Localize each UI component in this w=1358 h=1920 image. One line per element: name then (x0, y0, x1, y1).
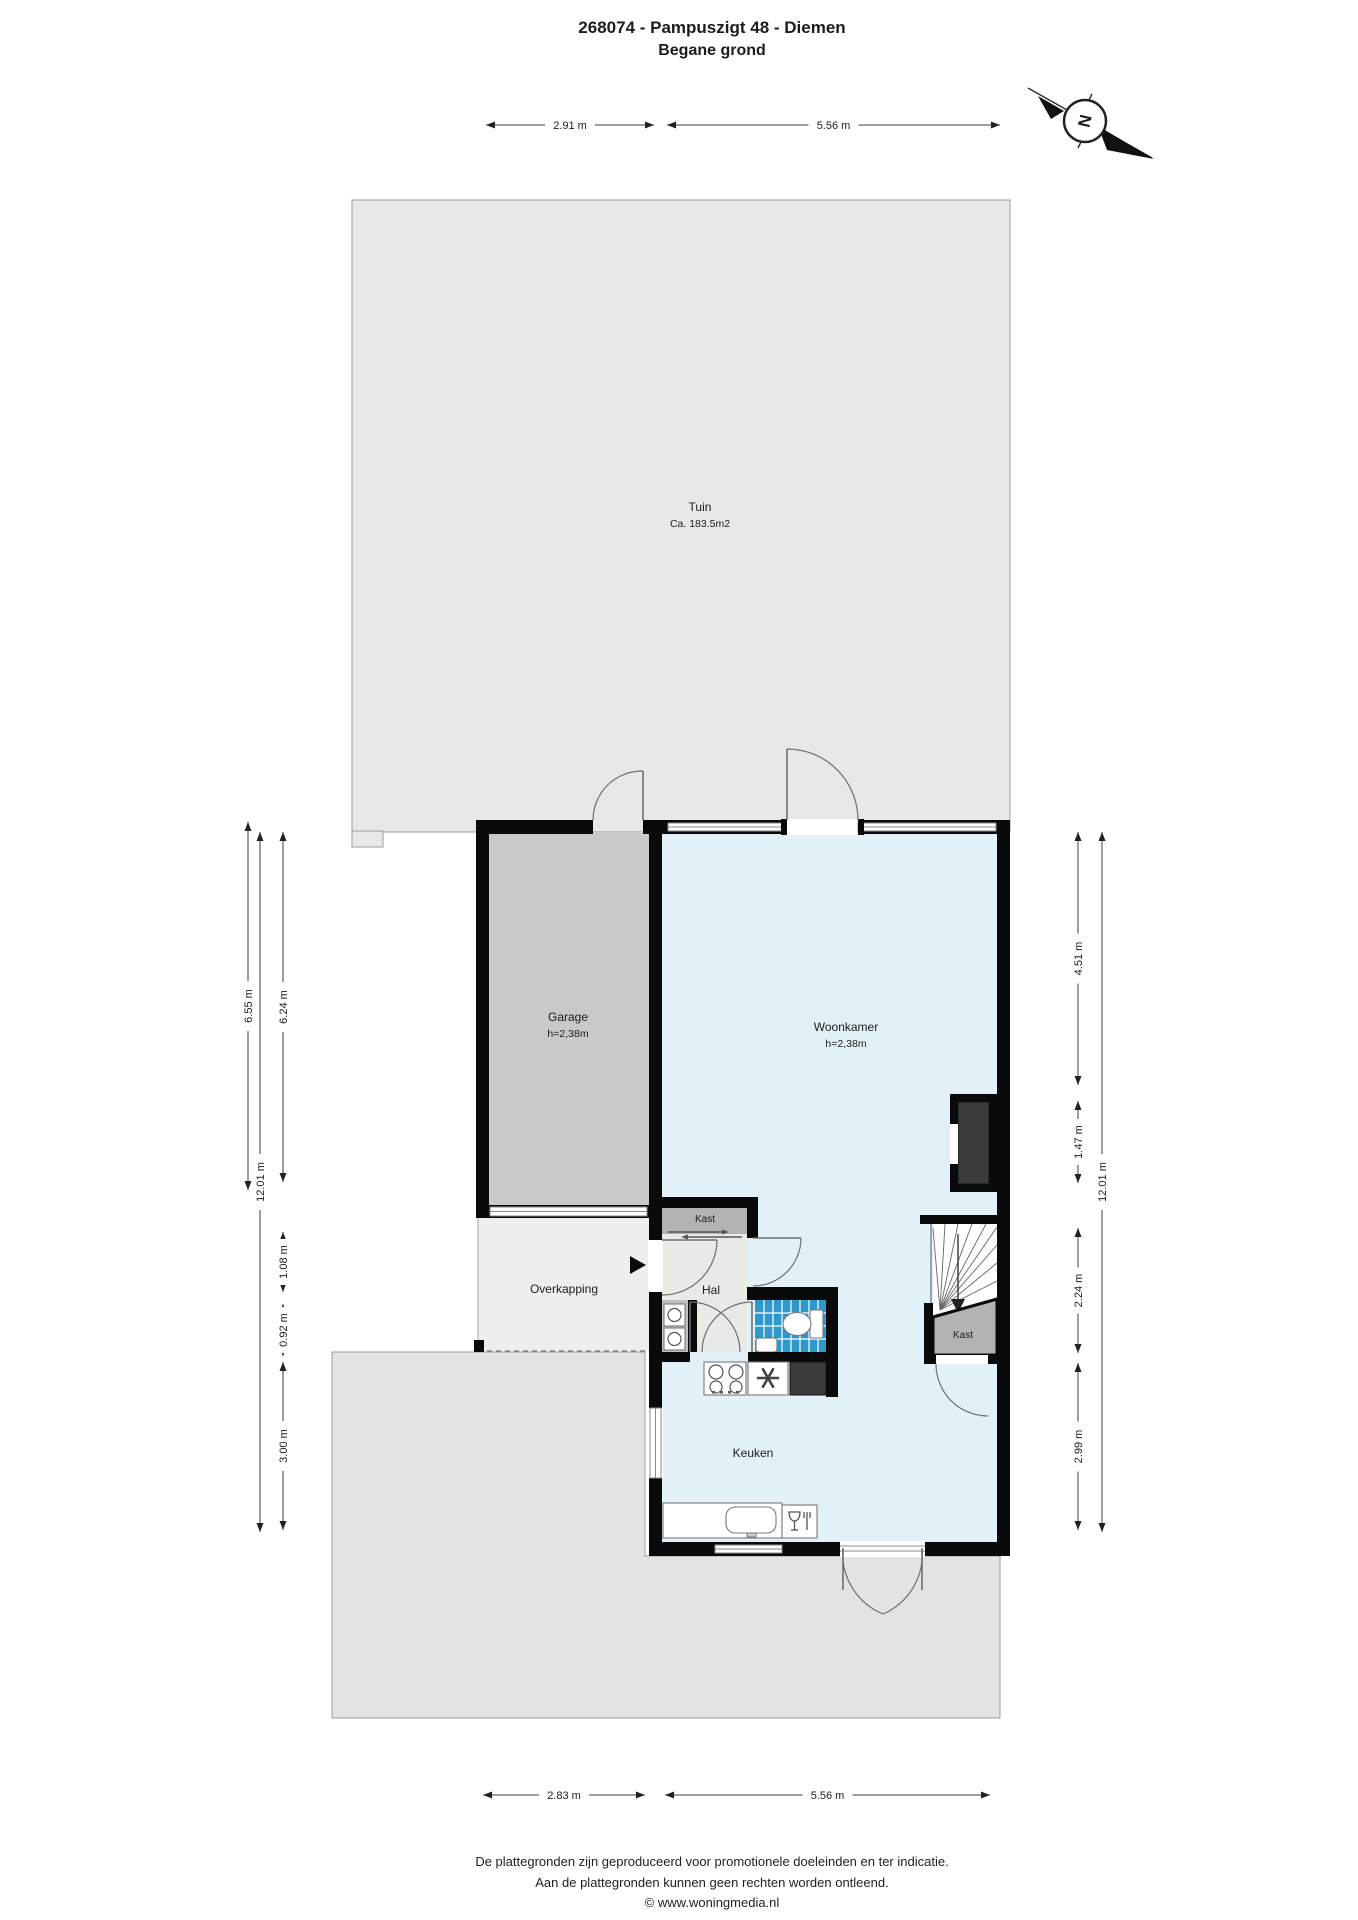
living-kitchen-floor (662, 834, 997, 1542)
dim-right-451: 4.51 m (1071, 832, 1085, 1085)
svg-text:4.51 m: 4.51 m (1073, 942, 1085, 976)
footer-line-2: Aan de plattegronden kunnen geen rechten… (535, 1875, 888, 1890)
hall-label: Hal (702, 1283, 720, 1297)
floorplan-canvas: 268074 - Pampuszigt 48 - Diemen Begane g… (0, 0, 1358, 1920)
kitchen-sink (726, 1507, 776, 1533)
svg-text:0.92 m: 0.92 m (278, 1313, 290, 1347)
dim-top-2: 5.56 m (667, 118, 1000, 132)
compass-rose: N (1028, 88, 1154, 159)
title-block: 268074 - Pampuszigt 48 - Diemen Begane g… (578, 18, 845, 59)
washer (664, 1304, 685, 1326)
svg-text:1.08 m: 1.08 m (278, 1245, 290, 1279)
svg-text:5.56 m: 5.56 m (811, 1790, 845, 1802)
front-door-opening (648, 1240, 663, 1292)
floorplan-page: 268074 - Pampuszigt 48 - Diemen Begane g… (0, 0, 1358, 1920)
dim-bottom-2: 5.56 m (665, 1788, 990, 1802)
dryer (664, 1328, 685, 1350)
dim-left-624: 6.24 m (276, 832, 290, 1182)
south-wall (649, 1542, 1010, 1556)
wc-sink (756, 1338, 777, 1352)
footer-line-1: De plattegronden zijn geproduceerd voor … (475, 1854, 948, 1869)
fridge (790, 1362, 826, 1395)
footer-line-3: © www.woningmedia.nl (645, 1895, 780, 1910)
svg-text:2.83 m: 2.83 m (547, 1790, 581, 1802)
dim-left-655: 6.55 m (241, 822, 255, 1190)
dim-right-299: 2.99 m (1071, 1363, 1085, 1530)
svg-text:6.24 m: 6.24 m (278, 990, 290, 1024)
svg-text:2.99 m: 2.99 m (1073, 1430, 1085, 1464)
dim-bottom-1: 2.83 m (483, 1788, 645, 1802)
dim-left-300: 3.00 m (276, 1362, 290, 1530)
dim-left-092: 0.92 m (276, 1304, 290, 1356)
garage-height-label: h=2,38m (547, 1028, 588, 1040)
dim-right-1201: 12.01 m (1095, 832, 1109, 1532)
stairs-closet-label: Kast (953, 1330, 973, 1341)
hall-closet-label: Kast (695, 1214, 715, 1225)
toilet-bowl (783, 1313, 811, 1336)
svg-text:2.91 m: 2.91 m (553, 120, 587, 132)
svg-text:5.56 m: 5.56 m (817, 120, 851, 132)
dim-left-108: 1.08 m (276, 1232, 290, 1292)
svg-text:12.01 m: 12.01 m (255, 1162, 267, 1202)
svg-text:12.01 m: 12.01 m (1097, 1162, 1109, 1202)
page-title: 268074 - Pampuszigt 48 - Diemen (578, 18, 845, 37)
kitchen-label: Keuken (733, 1446, 774, 1460)
svg-text:1.47 m: 1.47 m (1073, 1125, 1085, 1159)
garage-label: Garage (548, 1010, 588, 1024)
canopy-label: Overkapping (530, 1282, 598, 1296)
svg-text:3.00 m: 3.00 m (278, 1429, 290, 1463)
toilet-tank (810, 1310, 823, 1338)
faucet-icon (747, 1533, 756, 1537)
svg-text:2.24 m: 2.24 m (1073, 1274, 1085, 1308)
page-subtitle: Begane grond (658, 42, 766, 59)
canopy-post (474, 1340, 484, 1352)
compass-tail-icon (1038, 96, 1064, 119)
dim-right-147: 1.47 m (1071, 1101, 1085, 1183)
svg-text:6.55 m: 6.55 m (243, 989, 255, 1023)
compass-arrow-icon (1098, 126, 1154, 159)
living-room-label: Woonkamer (814, 1020, 878, 1034)
garden-area (352, 200, 1010, 832)
dim-right-224: 2.24 m (1071, 1228, 1085, 1353)
french-door-opening (840, 1541, 925, 1557)
garden-notch (352, 831, 383, 847)
dim-top-1: 2.91 m (486, 118, 654, 132)
garden-label: Tuin (689, 500, 712, 514)
east-wall (997, 820, 1010, 1556)
fireplace-body (958, 1102, 989, 1184)
garage-living-wall (649, 820, 662, 1218)
dishwasher (782, 1505, 817, 1538)
fireplace-opening (950, 1124, 958, 1164)
living-height-label: h=2,38m (825, 1038, 866, 1050)
footer-disclaimer: De plattegronden zijn geproduceerd voor … (475, 1854, 948, 1910)
dim-left-1201: 12.01 m (253, 832, 267, 1532)
garden-door-opening (787, 819, 858, 835)
wc-room (755, 1300, 826, 1352)
garden-area-label: Ca. 183.5m2 (670, 518, 730, 530)
